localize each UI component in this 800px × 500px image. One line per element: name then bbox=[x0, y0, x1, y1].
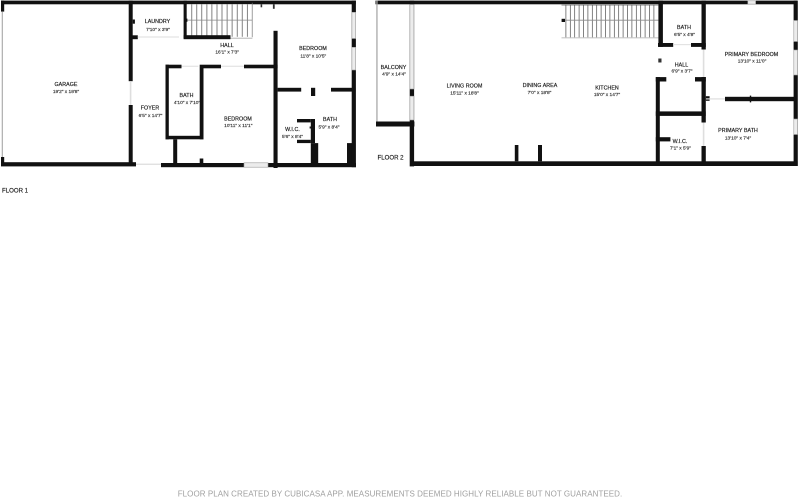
svg-text:W.I.C.: W.I.C. bbox=[285, 127, 300, 133]
svg-text:FLOOR PLAN CREATED BY CUBICASA: FLOOR PLAN CREATED BY CUBICASA APP. MEAS… bbox=[178, 490, 623, 499]
svg-text:19'2" x 18'8": 19'2" x 18'8" bbox=[53, 89, 80, 95]
svg-text:7'1" x 5'9": 7'1" x 5'9" bbox=[670, 146, 691, 152]
svg-text:BATH: BATH bbox=[677, 25, 691, 31]
svg-text:GARAGE: GARAGE bbox=[55, 82, 78, 88]
svg-text:HALL: HALL bbox=[220, 43, 233, 49]
svg-text:LIVING ROOM: LIVING ROOM bbox=[447, 84, 483, 90]
svg-text:BEDROOM: BEDROOM bbox=[299, 46, 327, 52]
svg-text:W.I.C.: W.I.C. bbox=[673, 139, 688, 145]
svg-text:6'5" x 4'8": 6'5" x 4'8" bbox=[674, 32, 695, 38]
svg-text:BATH: BATH bbox=[180, 93, 194, 99]
svg-text:16'1" x 7'3": 16'1" x 7'3" bbox=[215, 49, 239, 55]
svg-text:HALL: HALL bbox=[675, 63, 688, 69]
svg-text:4'10" x 7'10": 4'10" x 7'10" bbox=[174, 100, 201, 106]
svg-text:5'6" x 8'4": 5'6" x 8'4" bbox=[282, 134, 303, 140]
svg-text:FLOOR 1: FLOOR 1 bbox=[2, 187, 29, 194]
svg-text:7'0" x 18'8": 7'0" x 18'8" bbox=[528, 90, 552, 96]
svg-text:FOYER: FOYER bbox=[141, 106, 160, 112]
svg-text:FLOOR 2: FLOOR 2 bbox=[378, 154, 405, 161]
svg-text:13'10" x 11'0": 13'10" x 11'0" bbox=[738, 58, 767, 64]
svg-text:10'11" x 11'1": 10'11" x 11'1" bbox=[224, 123, 253, 129]
svg-text:4'9" x 14'4": 4'9" x 14'4" bbox=[382, 72, 406, 78]
svg-text:BEDROOM: BEDROOM bbox=[224, 116, 252, 122]
svg-text:5'9" x 8'4": 5'9" x 8'4" bbox=[319, 124, 340, 130]
svg-text:15'0" x 14'7": 15'0" x 14'7" bbox=[594, 92, 621, 98]
svg-text:PRIMARY BATH: PRIMARY BATH bbox=[718, 128, 758, 134]
svg-text:BATH: BATH bbox=[323, 117, 337, 123]
svg-text:BALCONY: BALCONY bbox=[381, 65, 407, 71]
svg-text:7'10" x 3'9": 7'10" x 3'9" bbox=[146, 27, 170, 33]
svg-text:LAUNDRY: LAUNDRY bbox=[145, 19, 171, 25]
svg-text:KITCHEN: KITCHEN bbox=[595, 86, 619, 92]
svg-text:DINING AREA: DINING AREA bbox=[523, 83, 558, 89]
svg-text:6'9" x 3'7": 6'9" x 3'7" bbox=[672, 68, 693, 74]
svg-text:15'11" x 18'8": 15'11" x 18'8" bbox=[450, 91, 479, 97]
svg-text:11'8" x 10'5": 11'8" x 10'5" bbox=[300, 53, 326, 59]
svg-text:6'5" x 14'7": 6'5" x 14'7" bbox=[139, 113, 163, 119]
svg-text:PRIMARY BEDROOM: PRIMARY BEDROOM bbox=[725, 52, 779, 58]
svg-text:13'10" x 7'4": 13'10" x 7'4" bbox=[725, 135, 752, 141]
